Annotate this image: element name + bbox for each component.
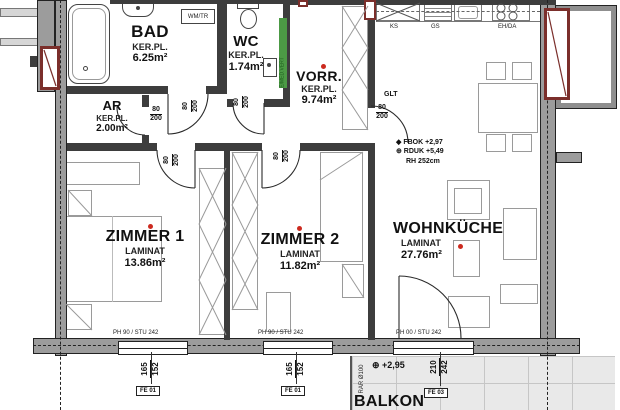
window2-size-top: 165: [285, 360, 295, 377]
zimmer1-floor: LAMINAT: [100, 246, 190, 256]
wall-zimmer1-zimmer2: [224, 151, 230, 340]
window3-head-label: PH 00 / STU 242: [396, 330, 441, 336]
window2-tag: FE 01: [281, 386, 305, 396]
window3-size: 210 242: [428, 352, 450, 382]
window2-head-label: PH 90 / STU 242: [258, 330, 303, 336]
tv-board: [500, 284, 538, 304]
sideboard: [503, 208, 537, 260]
dishwasher: [424, 3, 452, 21]
ar-area: 2.00m²: [86, 123, 138, 135]
exterior-ledge: [0, 38, 42, 46]
room-label-zimmer1: ZIMMER 1 LAMINAT 13.86m²: [100, 228, 190, 269]
ref-dot-zimmer2: [297, 226, 302, 231]
dining-chair: [486, 134, 506, 152]
window-zimmer1: [118, 341, 188, 355]
sofa: [448, 296, 490, 328]
cooktop: [492, 3, 530, 21]
shaft-top-mid: [298, 0, 308, 7]
door-size-den: 200: [173, 154, 181, 166]
wohnkueche-floor: LAMINAT: [393, 238, 497, 248]
shaft-vorr-top: [364, 0, 376, 20]
fridge-label: KS: [390, 24, 398, 30]
ref-dot-zimmer1: [148, 224, 153, 229]
door-size-den: 200: [150, 115, 162, 123]
nightstand-zimmer1: [68, 190, 92, 216]
washbasin-drain: [136, 6, 140, 10]
ref-dot-vorr: [321, 64, 326, 69]
axis-line-left: [60, 0, 61, 410]
bathtub-drain: [83, 66, 88, 71]
door-size-num: 80: [233, 96, 242, 108]
door-size-num: 80: [273, 150, 282, 162]
kitchen-counter-edge: [376, 21, 540, 22]
balcony-level-label: ⊕ +2,95: [372, 359, 405, 371]
top-wall-segment: [290, 0, 556, 5]
glt-label: GLT: [384, 90, 397, 99]
zimmer2-area: 11.82m²: [255, 260, 345, 273]
wall-hall-bottom: [195, 143, 262, 151]
room-label-ar: AR KER.PL. 2.00m²: [86, 99, 138, 135]
room-label-zimmer2: ZIMMER 2 LAMINAT 11.82m²: [255, 231, 345, 272]
cooktop-label: EH/DA: [498, 24, 516, 30]
desk-zimmer1: [62, 162, 140, 185]
wardrobe-zimmer1: [199, 168, 226, 335]
washer-dryer-label: WM/TR: [188, 14, 208, 20]
floor-plan: BALKON ⊕ +2,95 RAR Ø100 WM/TR KS GS EH/D…: [0, 0, 620, 410]
door-size-ar: 80 200: [144, 106, 168, 123]
ar-name: AR: [86, 99, 138, 114]
door-size-num: 80: [163, 154, 172, 166]
wall-hall-bottom: [67, 143, 157, 151]
wohnkueche-name: WOHNKÜCHE: [393, 220, 497, 238]
bathtub-inner: [72, 8, 106, 80]
dining-table: [478, 83, 538, 133]
window3-size-bottom: 242: [440, 360, 449, 373]
wall-stub-right: [556, 152, 582, 163]
window1-head-label: PH 90 / STU 242: [113, 330, 158, 336]
dining-chair: [512, 62, 532, 80]
bad-floor: KER.PL.: [105, 42, 195, 52]
zimmer1-name: ZIMMER 1: [100, 228, 190, 246]
wall-zimmer2-wohnkueche: [368, 145, 375, 340]
window3-tag: FE 03: [424, 388, 448, 398]
dining-chair: [512, 134, 532, 152]
door-size-wohnkueche: 80 200: [370, 104, 394, 121]
top-wall-segment: [110, 0, 230, 4]
kitchen-sink-basin: [458, 6, 478, 19]
room-label-wohnkueche: WOHNKÜCHE LAMINAT 27.76m²: [393, 220, 497, 261]
vorr-name: VORR.: [288, 68, 350, 84]
wall-hall-bottom: [300, 143, 375, 151]
window1-tag: FE 01: [136, 386, 160, 396]
vorr-floor: KER.PL.: [288, 84, 350, 94]
ar-floor: KER.PL.: [86, 114, 138, 123]
wall-vorr-kitchen: [368, 20, 375, 108]
window1-size-bottom: 152: [151, 362, 160, 375]
window1-size-top: 165: [140, 360, 150, 377]
window2-size-bottom: 152: [296, 362, 305, 375]
shaft-left: [40, 46, 60, 90]
door-size-den: 200: [376, 113, 388, 121]
door-size-den: 200: [283, 150, 291, 162]
wall-bad-bottom: [67, 86, 168, 94]
nightstand-zimmer2: [342, 264, 364, 298]
window3-size-top: 210: [429, 358, 439, 375]
wohnkueche-area: 27.76m²: [393, 249, 497, 262]
kitchen-dashed-line: [376, 11, 540, 12]
level-annotations: ◆ FBOK +2,97 ⊕ RDUK +5,49 RH 252cm: [396, 138, 444, 166]
door-size-wc: 80 200: [233, 89, 251, 115]
door-size-den: 200: [192, 100, 200, 112]
fridge: [376, 3, 420, 21]
wc-name: WC: [218, 33, 274, 50]
rduk-level: ⊕ RDUK +5,49: [396, 147, 444, 156]
wc-area: 1.74m²: [218, 61, 274, 74]
top-wall-segment: [217, 0, 290, 4]
desk-zimmer2: [266, 292, 291, 332]
room-label-wc: WC KER.PL. 1.74m²: [218, 33, 274, 73]
fbok-level: ◆ FBOK +2,97: [396, 138, 444, 147]
room-label-vorr: VORR. KER.PL. 9.74m²: [288, 68, 350, 107]
ref-dot-wohnkueche: [458, 244, 463, 249]
window-zimmer2: [263, 341, 333, 355]
zimmer1-area: 13.86m²: [100, 257, 190, 270]
wall-wc-bottom: [264, 99, 283, 107]
window1-size: 165 152: [139, 354, 161, 384]
door-size-num: 80: [182, 100, 191, 112]
door-size-zimmer2: 80 200: [273, 143, 291, 169]
shaft-top-right: [544, 8, 570, 100]
dining-chair: [486, 62, 506, 80]
door-size-den: 200: [243, 96, 251, 108]
armchair-cushion: [454, 188, 482, 214]
window2-size: 165 152: [284, 354, 306, 384]
dishwasher-label: GS: [431, 24, 440, 30]
wc-floor: KER.PL.: [218, 50, 274, 60]
vorr-area: 9.74m²: [288, 94, 350, 107]
exterior-ledge: [0, 8, 42, 17]
room-height: RH 252cm: [396, 157, 444, 166]
bad-area: 6.25m²: [105, 52, 195, 65]
zimmer2-floor: LAMINAT: [255, 249, 345, 259]
toilet-bowl: [240, 9, 257, 29]
door-size-zimmer1: 80 200: [163, 147, 181, 173]
door-size-num: 80: [376, 104, 388, 113]
door-size-num: 80: [150, 106, 162, 115]
nightstand2-zimmer1: [66, 304, 92, 330]
room-label-bad: BAD KER.PL. 6.25m²: [105, 22, 195, 65]
bad-name: BAD: [105, 22, 195, 42]
duct-label: E/MED.VERT: [281, 48, 286, 98]
wall-bad-bottom: [206, 86, 217, 94]
door-size-bad: 80 200: [182, 93, 200, 119]
balcony-drain-label: RAR Ø100: [359, 357, 365, 401]
zimmer2-name: ZIMMER 2: [255, 231, 345, 249]
